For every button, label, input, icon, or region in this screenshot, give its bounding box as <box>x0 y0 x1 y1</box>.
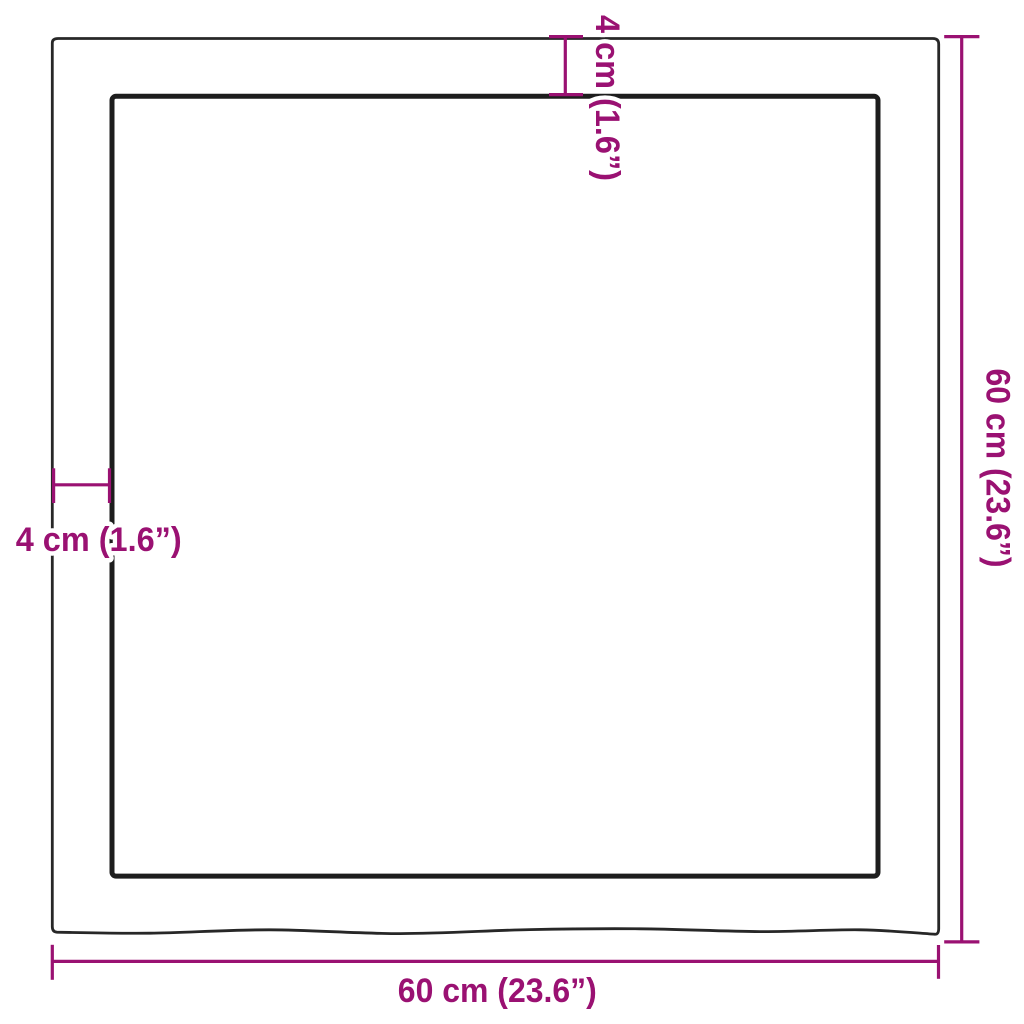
svg-text:4 cm (1.6”): 4 cm (1.6”) <box>16 521 182 559</box>
svg-text:60 cm (23.6”): 60 cm (23.6”) <box>398 972 597 1010</box>
svg-text:4 cm (1.6”): 4 cm (1.6”) <box>588 15 626 181</box>
svg-text:60 cm (23.6”): 60 cm (23.6”) <box>979 369 1017 568</box>
